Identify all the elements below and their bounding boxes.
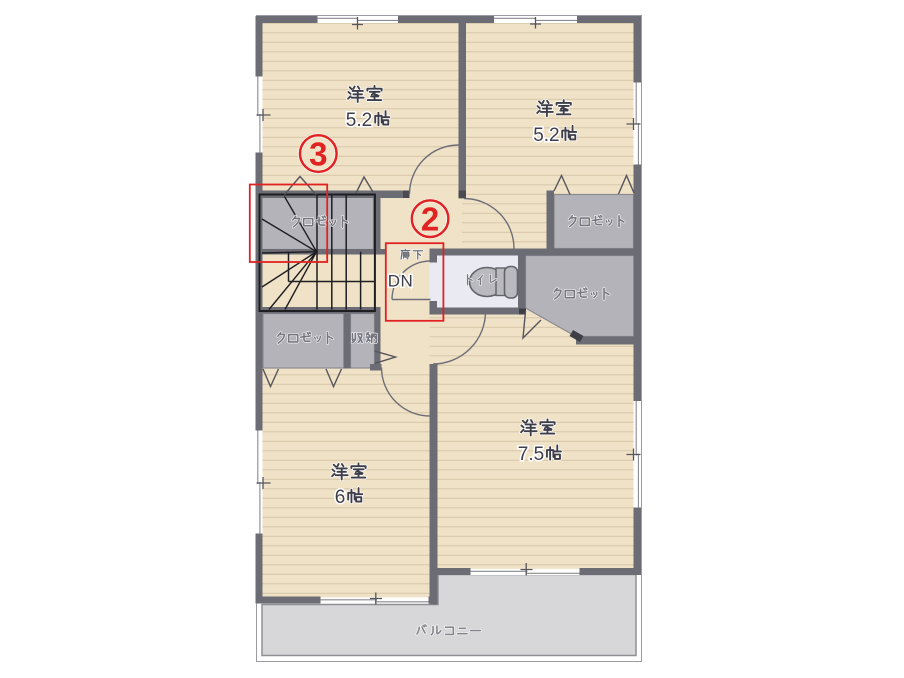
svg-text:5.2: 5.2 <box>533 125 559 146</box>
svg-text:5.2: 5.2 <box>346 110 372 131</box>
svg-text:DN: DN <box>388 272 414 291</box>
svg-text:3: 3 <box>309 136 327 173</box>
svg-text:6: 6 <box>335 487 346 508</box>
svg-text:7.5: 7.5 <box>518 444 544 465</box>
svg-text:2: 2 <box>421 201 439 238</box>
